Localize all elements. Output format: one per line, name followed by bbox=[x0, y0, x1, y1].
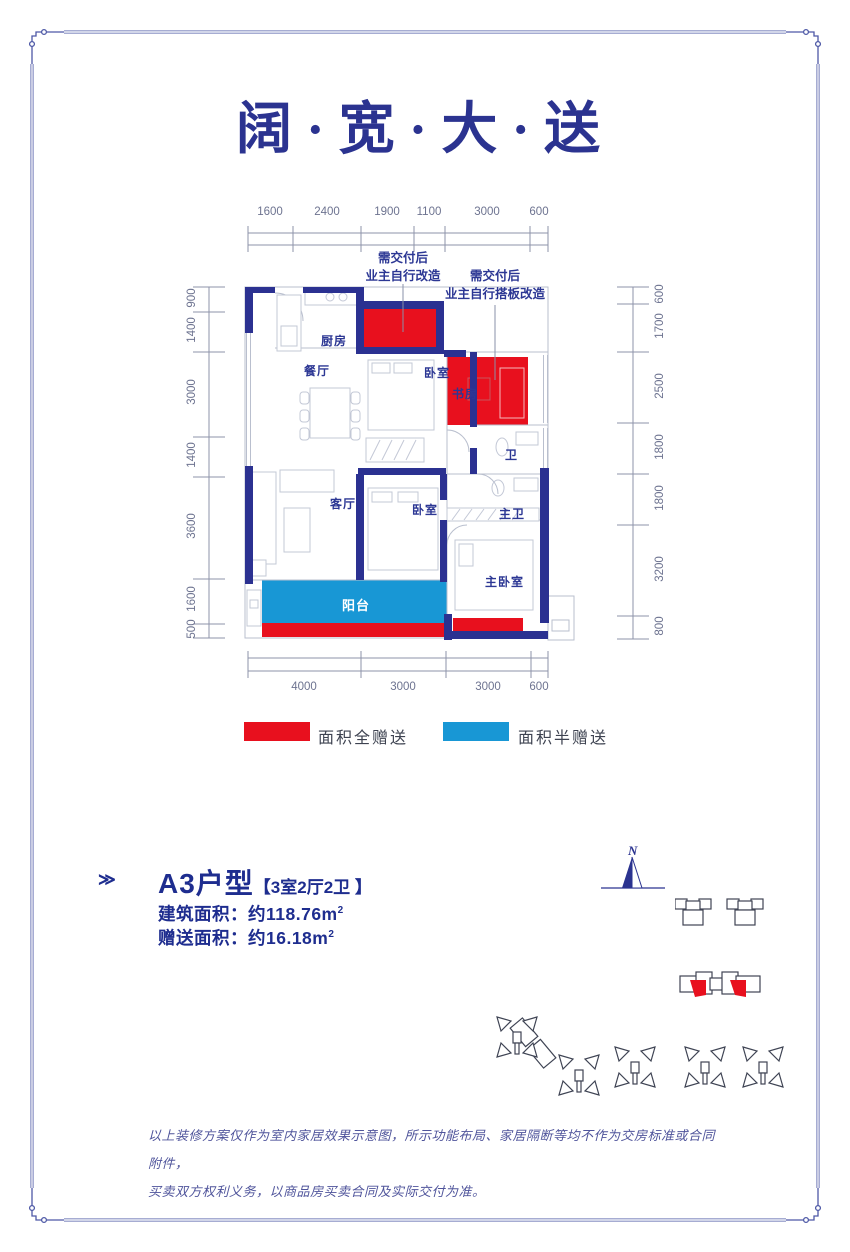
dim-top-2: 2400 bbox=[307, 206, 347, 218]
siteplan-buildings-bottom-icon bbox=[495, 1015, 795, 1100]
dim-bottom-4: 600 bbox=[519, 681, 559, 693]
chevrons-marker: ≫ bbox=[98, 870, 116, 890]
legend-label-half-gift: 面积半赠送 bbox=[518, 724, 608, 748]
room-bedroom-mid: 卧室 bbox=[412, 501, 438, 518]
legend-label-full-gift: 面积全赠送 bbox=[318, 724, 408, 748]
svg-text:N: N bbox=[627, 845, 638, 858]
dim-left-5: 3600 bbox=[186, 506, 198, 546]
dim-bottom-2: 3000 bbox=[383, 681, 423, 693]
annotation-board: 需交付后 业主自行搭板改造 bbox=[429, 267, 561, 303]
dim-top-1: 1600 bbox=[250, 206, 290, 218]
room-balcony: 阳台 bbox=[342, 595, 370, 614]
legend-swatch-half-gift bbox=[443, 722, 509, 741]
room-kitchen: 厨房 bbox=[321, 332, 347, 349]
siteplan-building-highlighted-icon bbox=[676, 968, 776, 1008]
dim-top-3: 1900 bbox=[367, 206, 407, 218]
dim-top-6: 600 bbox=[519, 206, 559, 218]
north-arrow-icon: N bbox=[595, 845, 675, 895]
dim-top-4: 1100 bbox=[409, 206, 449, 218]
room-master-bath: 主卫 bbox=[499, 505, 525, 522]
siteplan-buildings-top-icon bbox=[675, 895, 785, 940]
dim-bottom-3: 3000 bbox=[468, 681, 508, 693]
dim-bottom-1: 4000 bbox=[284, 681, 324, 693]
dim-left-4: 1400 bbox=[186, 435, 198, 475]
unit-title: A3户型【3室2厅2卫 】 bbox=[158, 862, 372, 902]
room-living: 客厅 bbox=[330, 495, 356, 512]
dim-left-2: 1400 bbox=[186, 310, 198, 350]
dim-right-6: 3200 bbox=[654, 549, 666, 589]
building-area-row: 建筑面积：约118.76m2 bbox=[158, 901, 344, 926]
gift-area-row: 赠送面积：约16.18m2 bbox=[158, 925, 334, 950]
dim-left-3: 3000 bbox=[186, 372, 198, 412]
flyer-page: 阔·宽·大·送 bbox=[0, 0, 850, 1252]
dim-right-2: 1700 bbox=[654, 306, 666, 346]
dim-left-7: 500 bbox=[186, 609, 198, 649]
room-bedroom-top: 卧室 bbox=[424, 364, 450, 381]
disclaimer-text: 以上装修方案仅作为室内家居效果示意图，所示功能布局、家居隔断等均不作为交房标准或… bbox=[148, 1122, 728, 1206]
dim-right-4: 1800 bbox=[654, 427, 666, 467]
unit-layout: 【3室2厅2卫 】 bbox=[254, 878, 372, 897]
dim-right-5: 1800 bbox=[654, 478, 666, 518]
dim-right-7: 800 bbox=[654, 606, 666, 646]
room-bath: 卫 bbox=[505, 446, 518, 463]
room-master-bedroom: 主卧室 bbox=[485, 573, 524, 590]
unit-name: A3户型 bbox=[158, 868, 254, 899]
legend-swatch-full-gift bbox=[244, 722, 310, 741]
dim-top-5: 3000 bbox=[467, 206, 507, 218]
room-study: 书房 bbox=[452, 385, 478, 402]
dim-right-3: 2500 bbox=[654, 366, 666, 406]
room-dining: 餐厅 bbox=[304, 362, 330, 379]
